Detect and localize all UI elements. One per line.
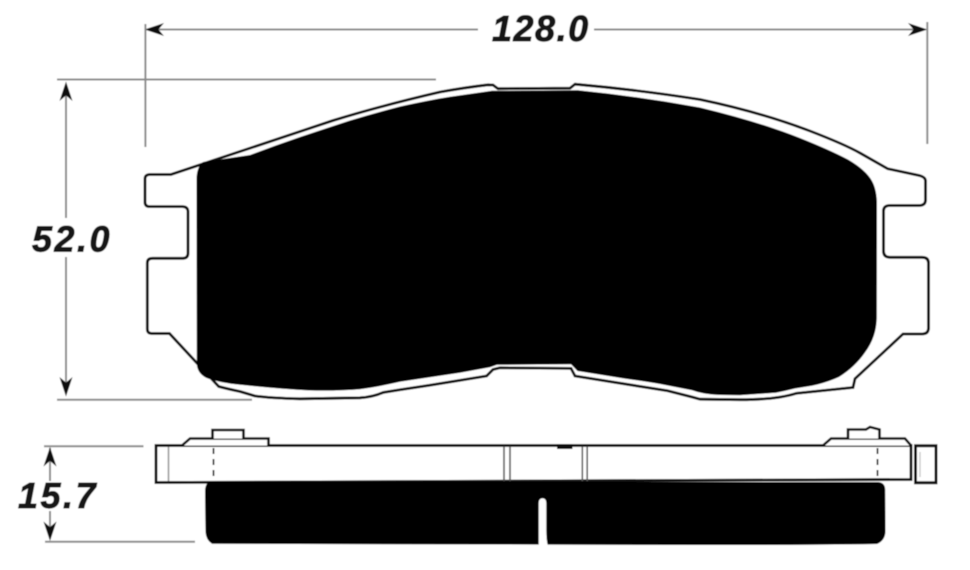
svg-text:15.7: 15.7 xyxy=(18,475,98,516)
svg-text:52.0: 52.0 xyxy=(32,219,112,260)
svg-text:128.0: 128.0 xyxy=(492,8,590,49)
